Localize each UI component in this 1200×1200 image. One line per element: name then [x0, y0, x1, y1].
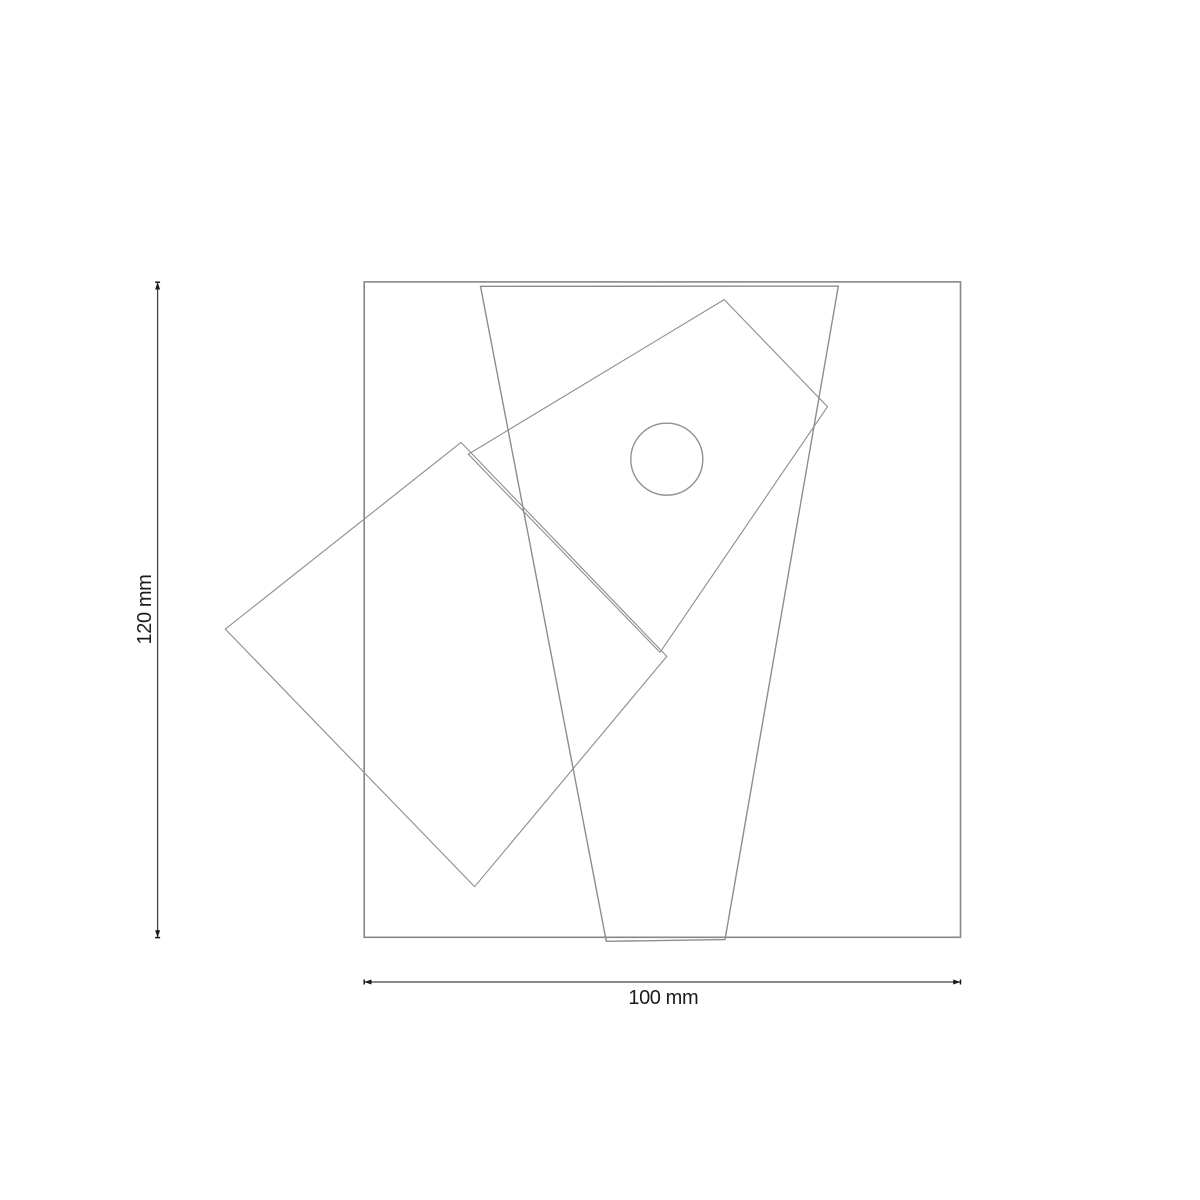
svg-text:100 mm: 100 mm [628, 987, 698, 1009]
svg-text:120 mm: 120 mm [134, 575, 156, 645]
